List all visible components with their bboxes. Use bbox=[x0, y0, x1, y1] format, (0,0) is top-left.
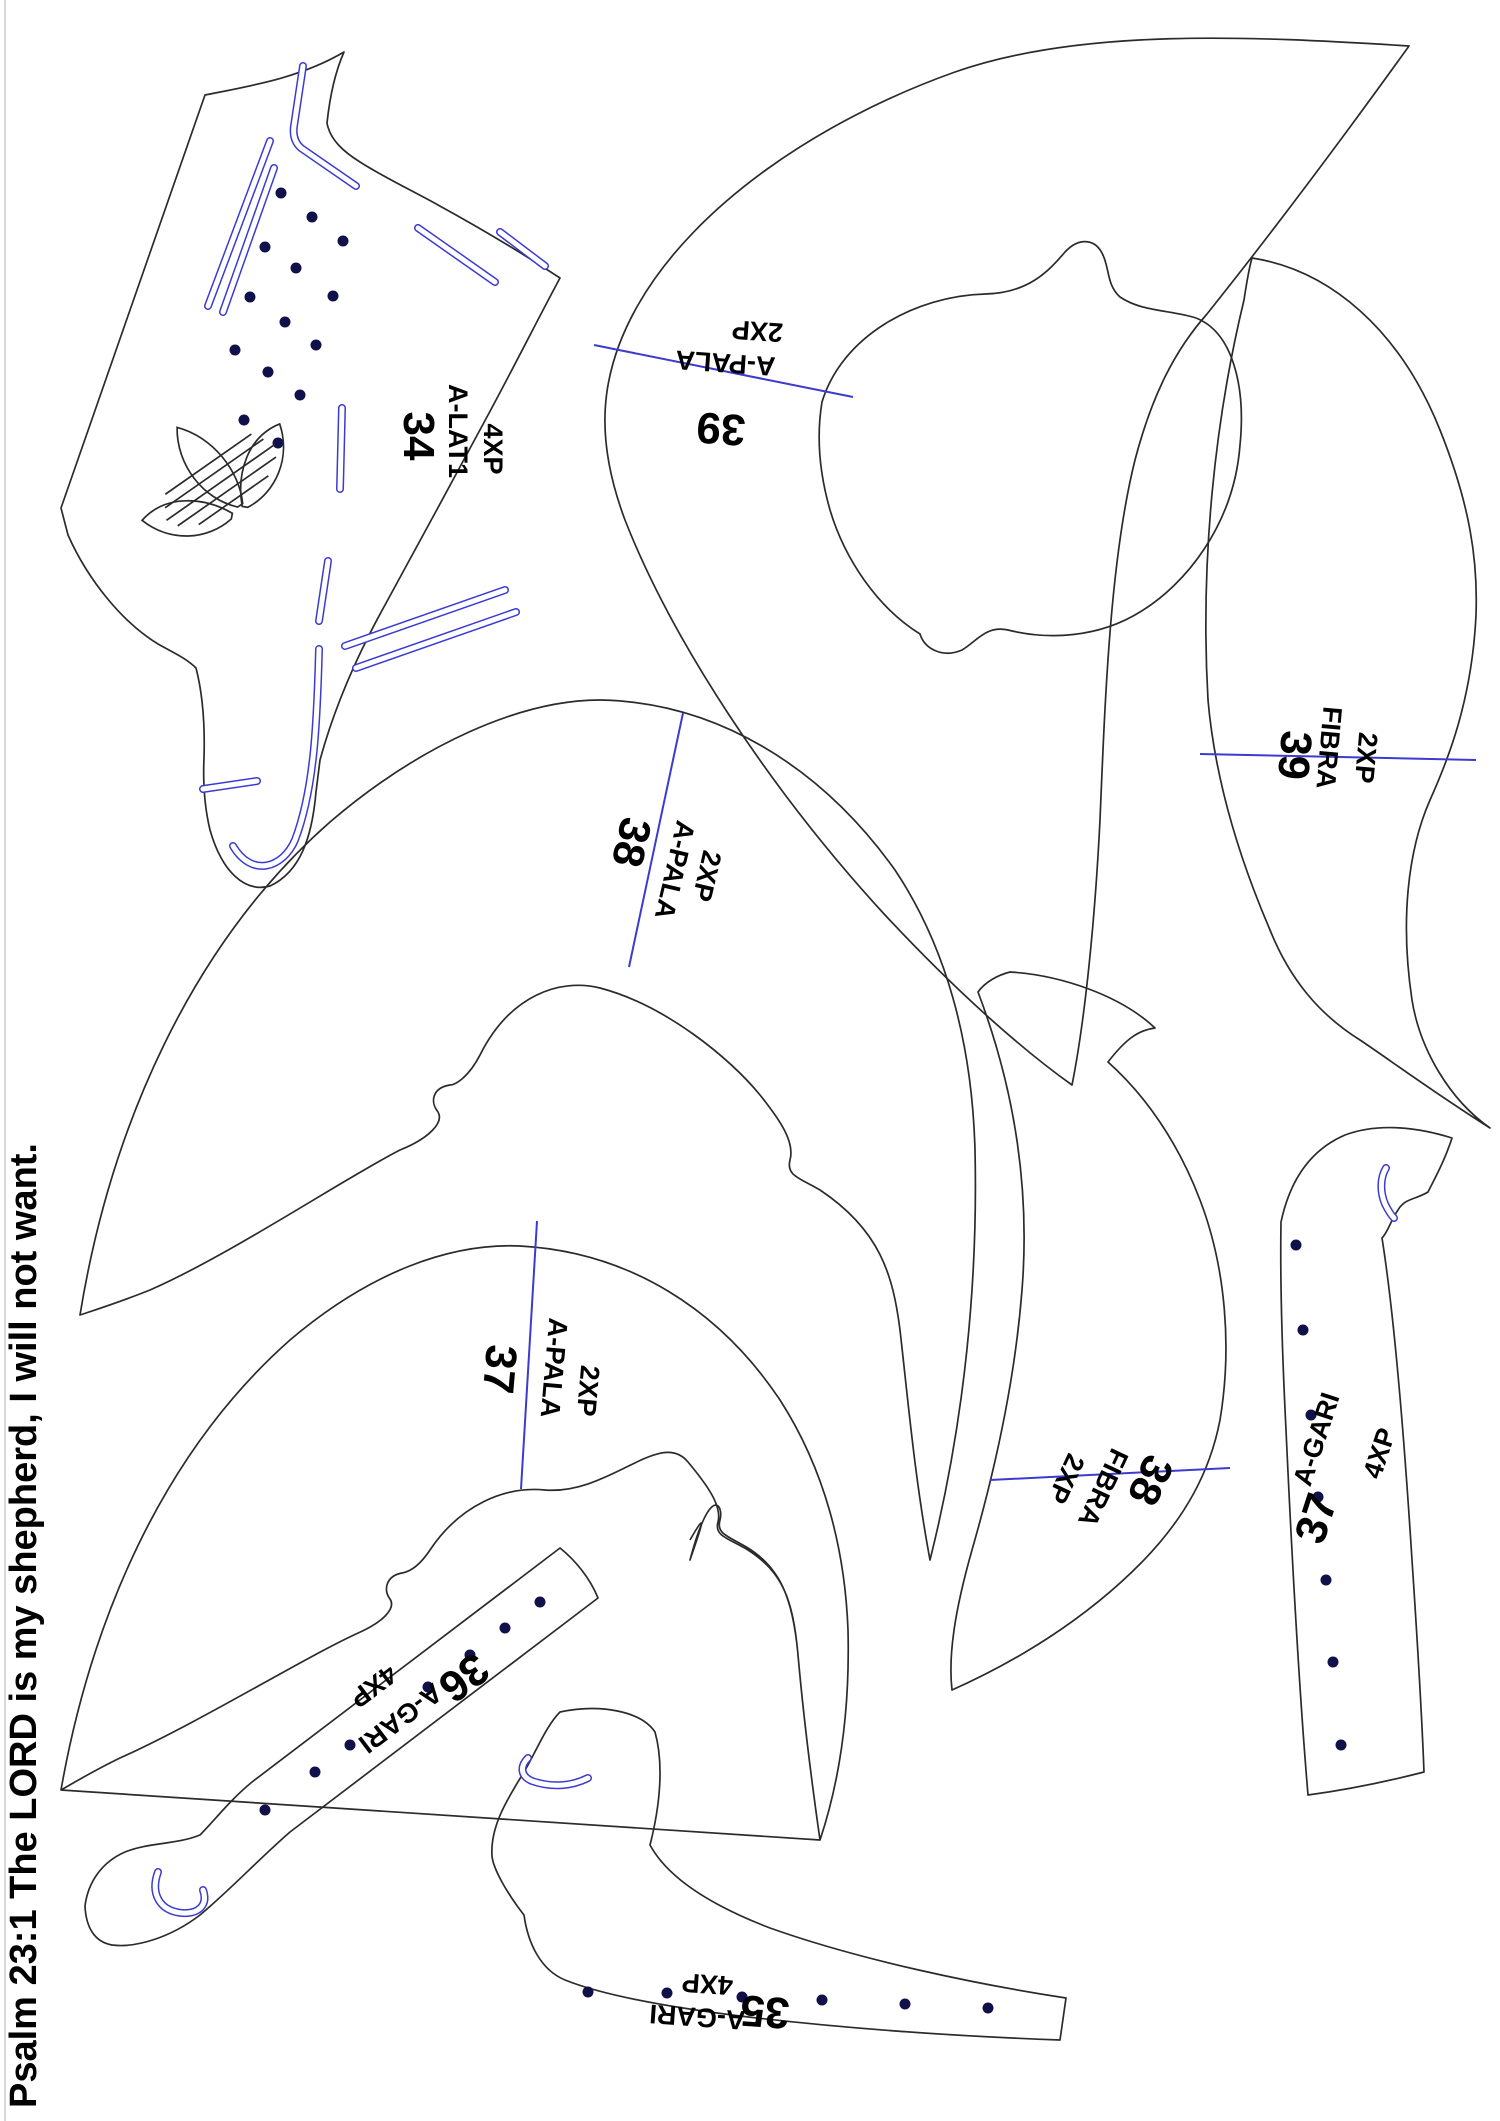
piece-38-fibra-outline bbox=[951, 972, 1226, 1690]
piece-35-a-gari-name: A-GARI bbox=[648, 1999, 746, 2036]
piece-38-a-pala-outline bbox=[80, 700, 975, 1560]
piece-39-a-pala-name: A-PALA bbox=[674, 345, 776, 382]
piece-39-fibra-outline bbox=[1206, 258, 1490, 1128]
piece-39-a-pala-outline bbox=[605, 38, 1409, 1085]
piece-39-fibra: 39 FIBRA 2XP bbox=[1200, 258, 1490, 1128]
piece-34-a-lat1: 34 A-LAT1 4XP bbox=[61, 52, 560, 887]
piece-34-quantity: 4XP bbox=[478, 423, 508, 474]
piece-39-a-pala: 39 A-PALA 2XP bbox=[594, 38, 1409, 1085]
piece-37-a-gari-quantity: 4XP bbox=[1357, 1424, 1401, 1482]
piece-37-a-pala-number: 37 bbox=[473, 1343, 526, 1396]
piece-36-a-gari-outline bbox=[85, 1548, 598, 1946]
piece-39-fibra-name: FIBRA bbox=[1310, 705, 1347, 790]
piece-39-a-pala-inner-cutout bbox=[819, 242, 1241, 654]
piece-35-a-gari-quantity: 4XP bbox=[681, 1967, 734, 2000]
piece-38-a-pala-number: 38 bbox=[602, 813, 661, 872]
piece-37-a-gari-name: A-GARI bbox=[1287, 1389, 1345, 1490]
piece-36-a-gari: 36 A-GARI 4XP bbox=[85, 1548, 598, 1946]
pattern-sheet: 34 A-LAT1 4XP 39 A-PALA 2XP 39 FIBRA 2XP… bbox=[0, 0, 1500, 2121]
piece-39-a-pala-number: 39 bbox=[695, 402, 747, 454]
margin-verse-text: Psalm 23:1 The LORD is my shepherd, I wi… bbox=[3, 1143, 45, 2108]
piece-34-number: 34 bbox=[394, 412, 443, 461]
piece-37-a-gari-number: 37 bbox=[1285, 1488, 1347, 1550]
piece-39-fibra-quantity: 2XP bbox=[1349, 731, 1383, 784]
piece-38-fibra: 38 FIBRA 2XP bbox=[951, 972, 1230, 1690]
piece-35-a-gari: 35 A-GARI 4XP bbox=[492, 1709, 1066, 2040]
piece-34-punch-dots bbox=[230, 188, 349, 449]
piece-34-name: A-LAT1 bbox=[443, 384, 473, 478]
piece-37-a-pala-name: A-PALA bbox=[535, 1317, 574, 1419]
piece-38-a-pala: 38 A-PALA 2XP bbox=[80, 700, 975, 1560]
piece-37-a-pala-outline bbox=[61, 1246, 848, 1840]
piece-37-a-pala: 37 A-PALA 2XP bbox=[61, 1221, 848, 1840]
piece-37-a-pala-quantity: 2XP bbox=[571, 1364, 605, 1417]
adidas-trefoil-logo bbox=[110, 378, 309, 562]
piece-39-a-pala-quantity: 2XP bbox=[731, 314, 784, 347]
piece-37-a-gari: 37 A-GARI 4XP bbox=[1281, 1128, 1452, 1795]
